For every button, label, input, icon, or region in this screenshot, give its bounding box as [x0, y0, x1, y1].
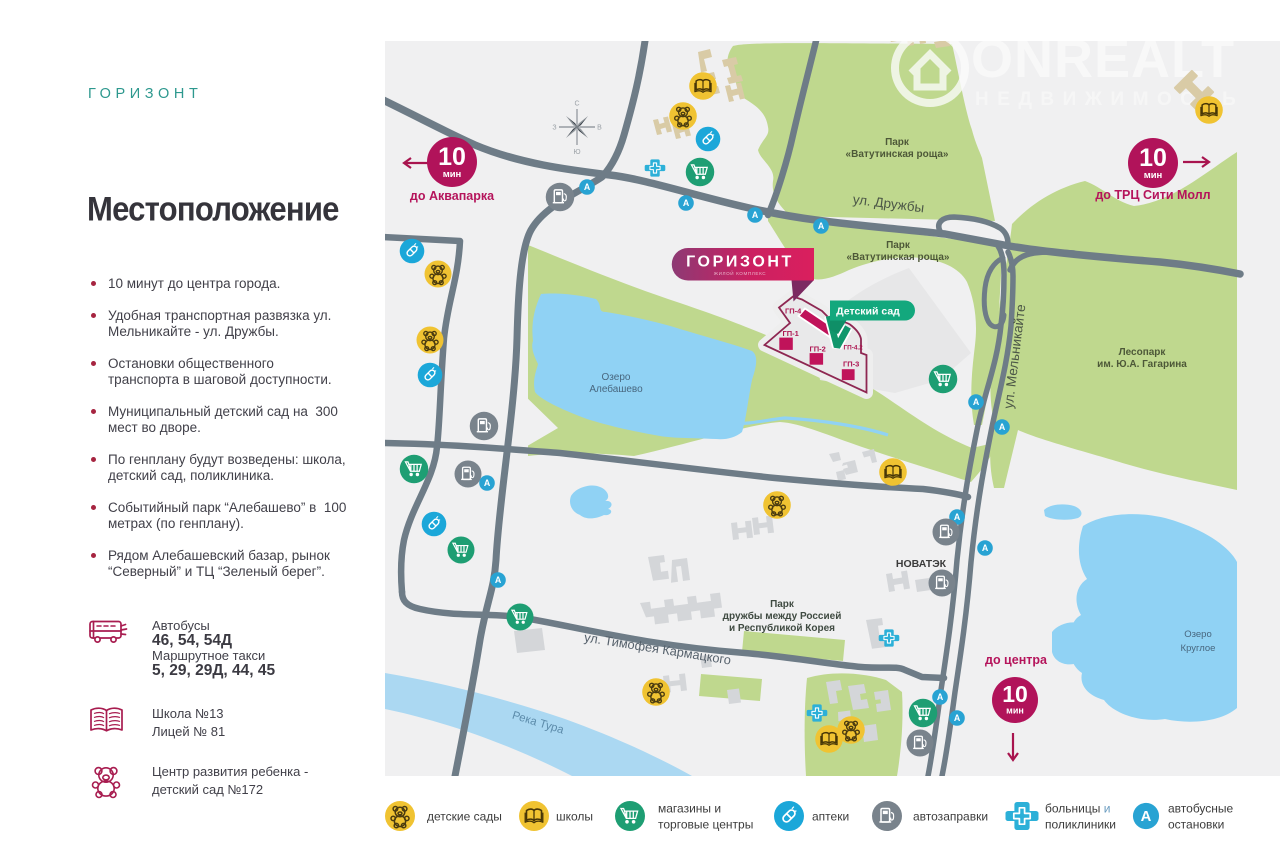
svg-text:«Ватутинская роща»: «Ватутинская роща» [847, 252, 950, 263]
svg-text:Парк: Парк [886, 240, 911, 251]
svg-text:ГП-4: ГП-4 [785, 307, 802, 316]
svg-text:ГП-1: ГП-1 [783, 329, 799, 338]
svg-text:10: 10 [438, 143, 466, 171]
svg-text:ГП-4.2: ГП-4.2 [844, 345, 864, 352]
svg-text:Ю: Ю [573, 149, 580, 156]
svg-text:Озеро: Озеро [1184, 629, 1212, 640]
svg-text:В: В [597, 125, 602, 132]
svg-text:и Республикой Корея: и Республикой Корея [729, 622, 835, 634]
svg-text:З: З [552, 125, 556, 132]
svg-text:Круглое: Круглое [1181, 643, 1216, 654]
svg-text:мин: мин [443, 169, 462, 180]
svg-text:Озеро: Озеро [602, 372, 631, 383]
svg-text:ГОРИЗОНТ: ГОРИЗОНТ [686, 254, 794, 271]
svg-text:Парк: Парк [770, 599, 795, 610]
svg-text:до центра: до центра [985, 653, 1048, 667]
svg-text:им. Ю.А. Гагарина: им. Ю.А. Гагарина [1097, 359, 1187, 370]
svg-text:мин: мин [1144, 170, 1163, 181]
svg-text:«Ватутинская роща»: «Ватутинская роща» [846, 149, 949, 160]
svg-text:ONREALT: ONREALT [971, 41, 1235, 89]
svg-text:Детский сад: Детский сад [836, 306, 900, 318]
svg-text:ЖИЛОЙ КОМПЛЕКС: ЖИЛОЙ КОМПЛЕКС [714, 269, 767, 276]
svg-text:до Аквапарка: до Аквапарка [410, 189, 495, 203]
svg-text:С: С [574, 101, 579, 108]
svg-text:мин: мин [1006, 706, 1024, 716]
svg-text:НОВАТЭК: НОВАТЭК [896, 558, 947, 570]
svg-text:10: 10 [1139, 144, 1167, 172]
svg-text:Лесопарк: Лесопарк [1119, 347, 1167, 358]
svg-text:Алебашево: Алебашево [589, 383, 643, 395]
svg-text:до ТРЦ Сити Молл: до ТРЦ Сити Молл [1095, 188, 1210, 202]
svg-text:10: 10 [1002, 681, 1028, 707]
svg-text:ГП-2: ГП-2 [810, 345, 826, 354]
svg-text:ГП-3: ГП-3 [843, 360, 859, 369]
svg-text:Парк: Парк [885, 137, 910, 148]
svg-text:дружбы между Россией: дружбы между Россией [723, 610, 842, 622]
